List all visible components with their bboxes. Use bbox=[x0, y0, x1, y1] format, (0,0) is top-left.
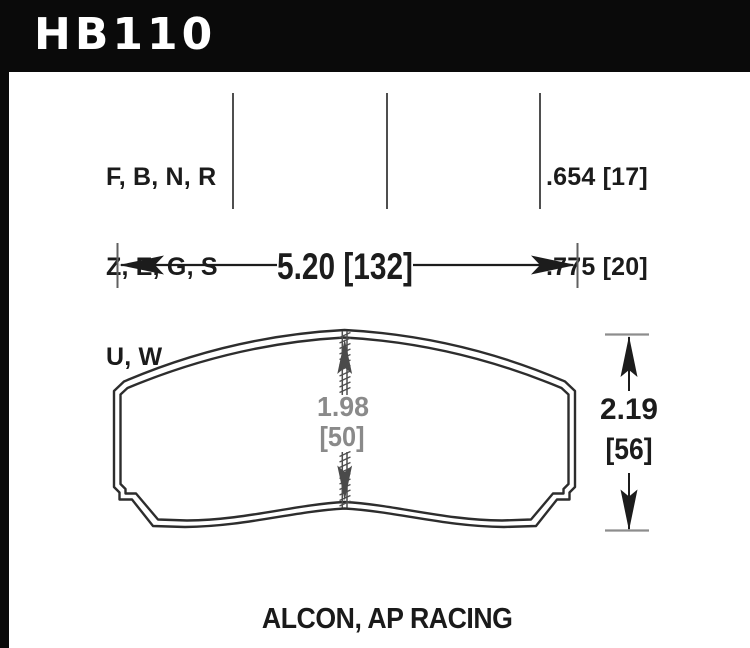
width-dimension-label: 5.20 [132] bbox=[277, 246, 413, 287]
applications-label: ALCON, AP RACING bbox=[262, 603, 513, 636]
applications-row: ALCON, AP RACING bbox=[24, 603, 750, 636]
catalog-page: HB110 F, B, N, R Z, E, G, S U, W .654 [1… bbox=[0, 0, 750, 648]
overall-height-bracket: [56] bbox=[606, 433, 653, 466]
overall-height-dimension: 2.19 [56] bbox=[600, 335, 658, 531]
friction-height-bracket: [50] bbox=[320, 421, 365, 452]
width-dimension: 5.20 [132] bbox=[118, 243, 578, 288]
overall-height-value: 2.19 bbox=[600, 393, 658, 426]
brake-pad-drawing: 5.20 [132] 1.98 [50] 2.19 [56] bbox=[0, 0, 750, 648]
friction-height-value: 1.98 bbox=[317, 391, 369, 422]
